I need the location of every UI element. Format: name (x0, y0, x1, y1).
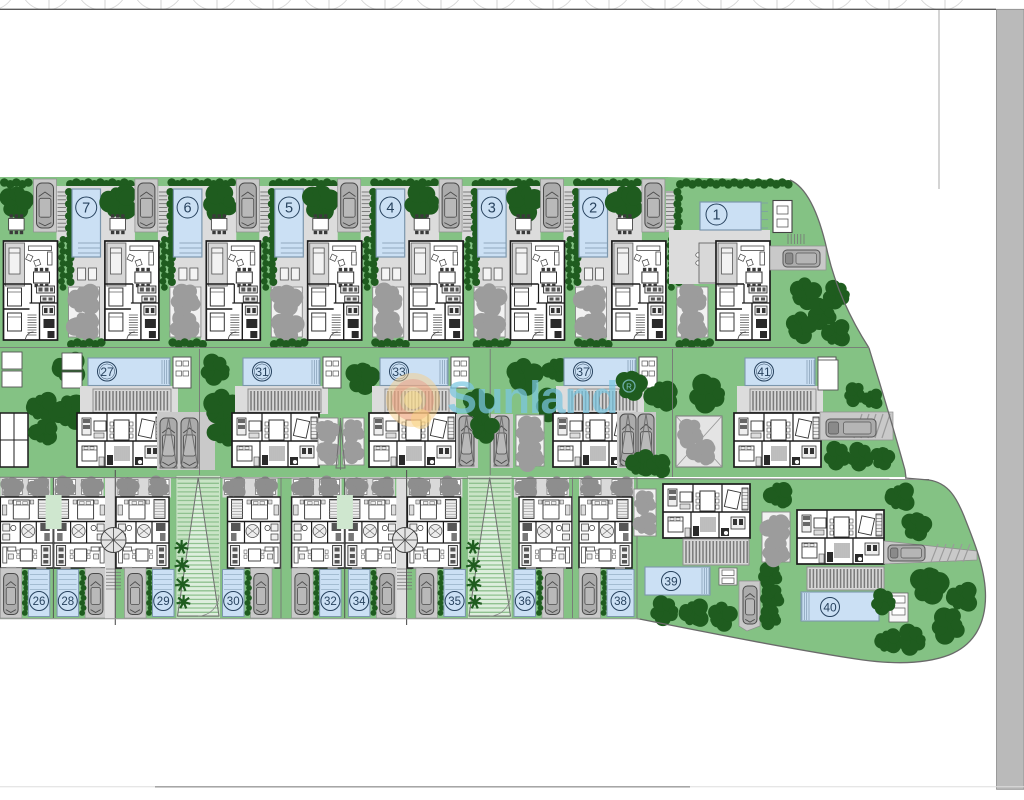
svg-text:6: 6 (184, 201, 192, 217)
svg-text:34: 34 (353, 596, 366, 608)
svg-text:3: 3 (488, 201, 496, 217)
svg-text:41: 41 (757, 365, 771, 379)
svg-text:32: 32 (324, 596, 337, 608)
svg-text:7: 7 (82, 201, 90, 217)
svg-text:35: 35 (448, 596, 461, 608)
svg-text:31: 31 (255, 365, 269, 379)
svg-text:2: 2 (589, 201, 597, 217)
svg-text:38: 38 (614, 596, 627, 608)
svg-text:30: 30 (227, 596, 240, 608)
svg-text:1: 1 (712, 208, 720, 224)
svg-text:40: 40 (823, 600, 837, 614)
svg-text:Sunland: Sunland (447, 372, 618, 423)
svg-text:5: 5 (285, 201, 293, 217)
svg-text:26: 26 (33, 596, 46, 608)
svg-text:27: 27 (100, 365, 114, 379)
svg-text:36: 36 (518, 596, 531, 608)
svg-text:4: 4 (386, 201, 394, 217)
svg-text:29: 29 (157, 596, 170, 608)
svg-text:39: 39 (664, 574, 678, 588)
svg-text:R: R (626, 383, 632, 392)
svg-text:28: 28 (61, 596, 74, 608)
